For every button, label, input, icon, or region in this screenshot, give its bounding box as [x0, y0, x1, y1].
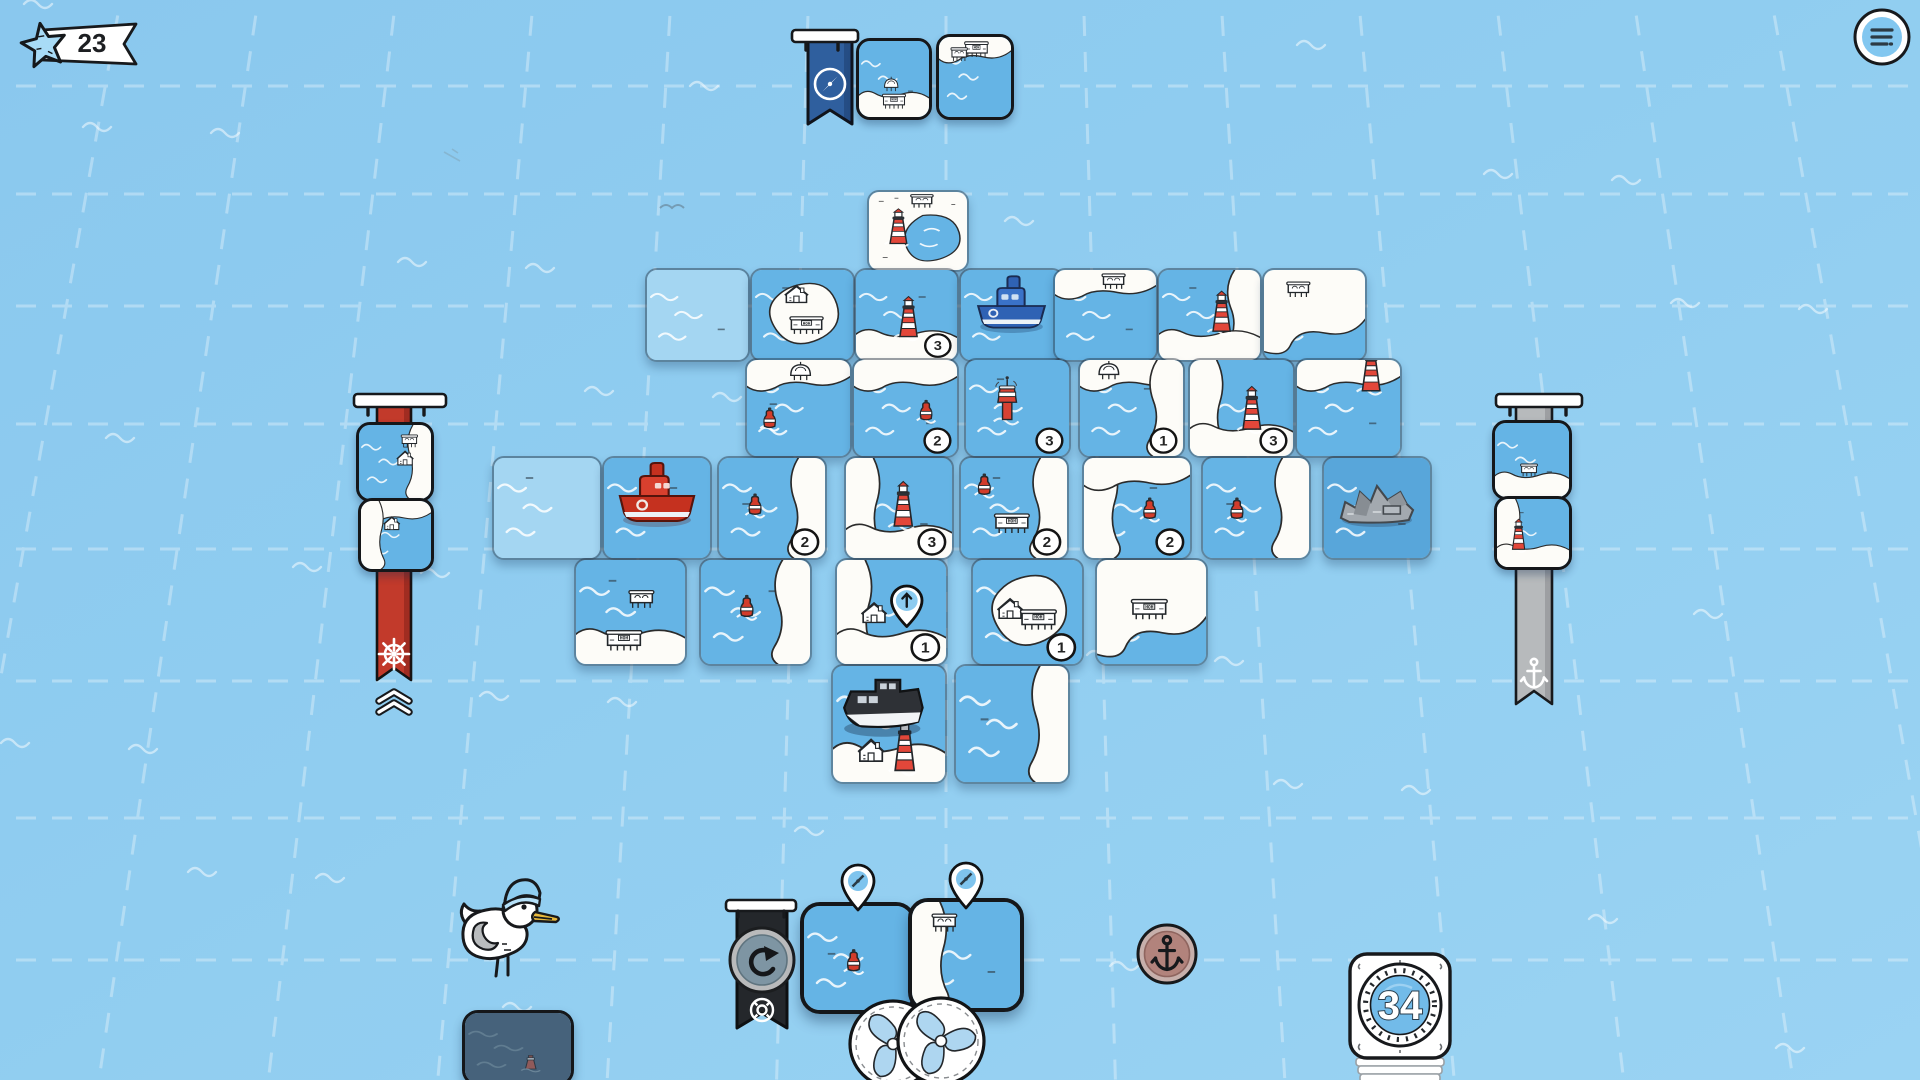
- hand-pin-2: [936, 854, 996, 920]
- tile-number-badge: 2: [792, 530, 819, 555]
- board-tile-r1-c5.2[interactable]: [1053, 268, 1158, 362]
- left-goal-tile-1: [356, 422, 434, 502]
- svg-text:2: 2: [1043, 534, 1052, 550]
- tile-number-badge: 2: [1034, 530, 1061, 555]
- left-objective-banner: [352, 392, 464, 744]
- right-goal-tile-2: [1494, 496, 1572, 570]
- anchor-button[interactable]: [1134, 922, 1202, 990]
- board-tile-r3-c0.05[interactable]: [492, 456, 602, 560]
- svg-text:1: 1: [1159, 434, 1167, 449]
- board-tile-r3-c5.42[interactable]: 2: [1082, 456, 1192, 560]
- tile-number-badge: 3: [1037, 429, 1063, 453]
- board-tile-r3-c2.1[interactable]: 2: [717, 456, 827, 560]
- svg-text:HOH: HOH: [891, 97, 896, 101]
- tile-number-badge: 3: [919, 530, 946, 555]
- board-tile-r0-c3.4[interactable]: [867, 190, 969, 272]
- board-tile-r2-c6.45[interactable]: 3: [1188, 358, 1295, 458]
- tile-number-badge: 1: [912, 634, 939, 660]
- warehouse-icon: HOH: [883, 94, 906, 108]
- queue-flag: [808, 40, 852, 124]
- deck-count: 34: [1378, 984, 1423, 1028]
- board-tile-r5-c3.2[interactable]: [831, 664, 947, 784]
- svg-text:HOH: HOH: [1008, 519, 1016, 525]
- svg-text:2: 2: [801, 534, 810, 550]
- tile-number-badge: 1: [1151, 429, 1177, 453]
- board-tile-r1-c4.3[interactable]: [959, 268, 1064, 362]
- svg-text:3: 3: [928, 534, 937, 550]
- board-tile-r2-c7.45[interactable]: [1295, 358, 1402, 458]
- board-tile-r3-c4.3[interactable]: HOH 2: [959, 456, 1069, 560]
- board-tile-r4-c2[interactable]: [699, 558, 812, 666]
- board-tile-r2-c4.35[interactable]: 3: [964, 358, 1071, 458]
- board-tile-r4-c0.9[interactable]: HOH: [574, 558, 687, 666]
- game-stage: HOH 3: [0, 0, 1920, 1080]
- svg-text:HOH: HOH: [1145, 604, 1154, 610]
- board-tile-r5-c4.25[interactable]: [954, 664, 1070, 784]
- svg-text:HOH: HOH: [974, 45, 980, 49]
- svg-text:2: 2: [1166, 534, 1175, 550]
- svg-text:HOH: HOH: [803, 321, 811, 326]
- deck-counter: 34: [1346, 952, 1458, 1080]
- board-tile-r1-c3.3[interactable]: 3: [854, 268, 959, 362]
- queue-tile-after: HOH: [936, 34, 1014, 120]
- svg-text:3: 3: [934, 338, 942, 353]
- tile-number-badge: 3: [925, 334, 950, 357]
- compass-pin-icon: [842, 865, 874, 910]
- svg-text:1: 1: [1057, 640, 1066, 657]
- ship-wheel-icon: [379, 639, 409, 669]
- tile-queue: HOH HOH: [788, 24, 1028, 164]
- warehouse-icon: HOH: [1021, 610, 1057, 630]
- warehouse-icon: HOH: [790, 317, 823, 334]
- svg-text:3: 3: [1045, 434, 1053, 449]
- deck-card-stack: [1356, 1058, 1444, 1080]
- propeller-token[interactable]: [898, 998, 984, 1080]
- board-tile-r3-c6.5[interactable]: [1201, 456, 1311, 560]
- compass-pin-icon: [950, 863, 982, 908]
- board-tile-r2-c3.3[interactable]: 2: [852, 358, 959, 458]
- tile-number-badge: 2: [1157, 530, 1184, 555]
- board-tile-r1-c1.3[interactable]: [645, 268, 750, 362]
- board-tile-r4-c3.2[interactable]: 1: [835, 558, 948, 666]
- board-tile-r1-c7.2[interactable]: [1262, 268, 1367, 362]
- propeller-tokens: [838, 994, 1048, 1080]
- right-goal-tile-1: [1492, 420, 1572, 500]
- rank-chevrons-icon: [379, 692, 409, 712]
- board-tile-r4-c5.5[interactable]: HOH: [1095, 558, 1208, 666]
- queue-tile-next: HOH: [856, 38, 932, 120]
- board-tile-r3-c3.25[interactable]: 3: [844, 456, 954, 560]
- board-tile-r2-c2.3[interactable]: [745, 358, 852, 458]
- board-tile-r4-c4.4[interactable]: HOH 1: [971, 558, 1084, 666]
- svg-text:3: 3: [1269, 434, 1277, 449]
- board-tile-r3-c7.6[interactable]: [1322, 456, 1432, 560]
- seagull-mascot: [438, 866, 598, 1018]
- undo-button[interactable]: [730, 928, 794, 992]
- left-goal-tile-2: [358, 498, 434, 572]
- score-badge: 23: [10, 8, 190, 92]
- warehouse-icon: HOH: [1131, 600, 1167, 620]
- board-tile-r2-c5.42[interactable]: 1: [1078, 358, 1185, 458]
- right-objective-banner: [1486, 392, 1598, 752]
- board-tile-r1-c2.3[interactable]: HOH: [750, 268, 855, 362]
- board-tile-r1-c6.2[interactable]: [1157, 268, 1262, 362]
- hand-pin-1: [828, 856, 888, 922]
- seagull-tile-stack: [462, 1010, 574, 1080]
- warehouse-icon: HOH: [994, 514, 1029, 533]
- score-value: 23: [78, 28, 107, 58]
- svg-text:HOH: HOH: [620, 636, 629, 642]
- tile-number-badge: 3: [1261, 429, 1287, 453]
- svg-text:HOH: HOH: [1034, 615, 1043, 621]
- tile-number-badge: 2: [925, 429, 951, 453]
- menu-button[interactable]: [1849, 6, 1915, 72]
- svg-text:1: 1: [921, 640, 930, 657]
- warehouse-icon: HOH: [965, 42, 989, 57]
- undo-flag: [724, 896, 808, 1056]
- board-tile-r3-c1.05[interactable]: [602, 456, 712, 560]
- svg-text:2: 2: [933, 434, 941, 449]
- tile-number-badge: 1: [1048, 634, 1075, 660]
- warehouse-icon: HOH: [606, 631, 642, 651]
